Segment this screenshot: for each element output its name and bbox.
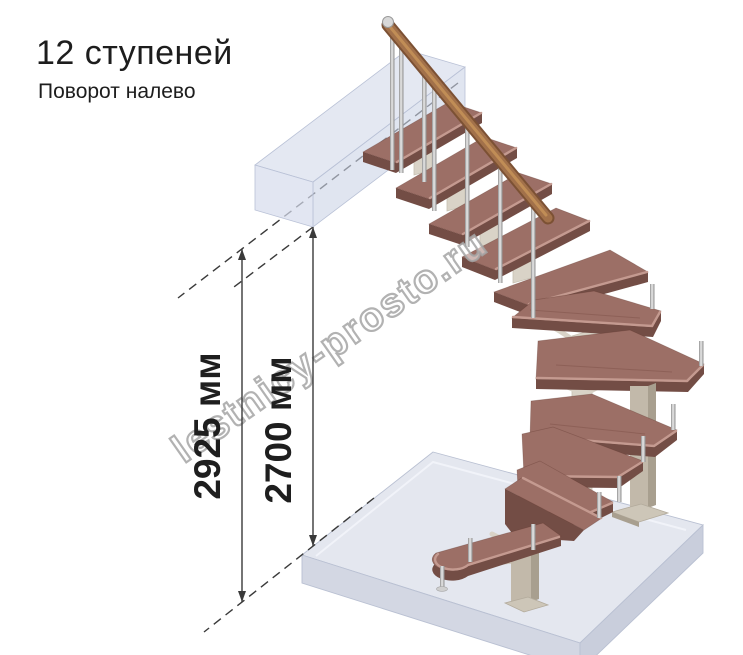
baluster-step6 (699, 341, 704, 366)
baluster-step2 (597, 492, 602, 518)
baluster-step3 (617, 476, 622, 502)
step1-support-leg (440, 566, 445, 588)
handrail-end-cap (383, 17, 394, 28)
baluster-step1-front (468, 538, 473, 562)
arrow-down-2925 (238, 591, 246, 602)
page-subtitle: Поворот налево (38, 80, 233, 104)
baluster-step11 (432, 81, 437, 211)
title-block: 12 ступеней Поворот налево (36, 34, 233, 104)
baluster-step9 (498, 161, 503, 283)
baluster-step5 (671, 404, 676, 430)
step-6 (536, 330, 704, 392)
baluster-step1-rear (531, 524, 536, 550)
dimension-label-2700: 2700 мм (258, 356, 299, 503)
baluster-step4 (641, 436, 646, 462)
page: 12 ступеней Поворот налево (0, 0, 743, 655)
baluster-step8 (531, 201, 536, 318)
support-leg-foot (437, 587, 448, 592)
landing-baluster-1 (390, 24, 395, 170)
landing-baluster-2 (422, 63, 427, 182)
baluster-step12 (399, 41, 404, 173)
baluster-step7 (650, 284, 655, 309)
page-title: 12 ступеней (36, 34, 233, 73)
dimension-label-2925: 2925 мм (187, 352, 228, 499)
